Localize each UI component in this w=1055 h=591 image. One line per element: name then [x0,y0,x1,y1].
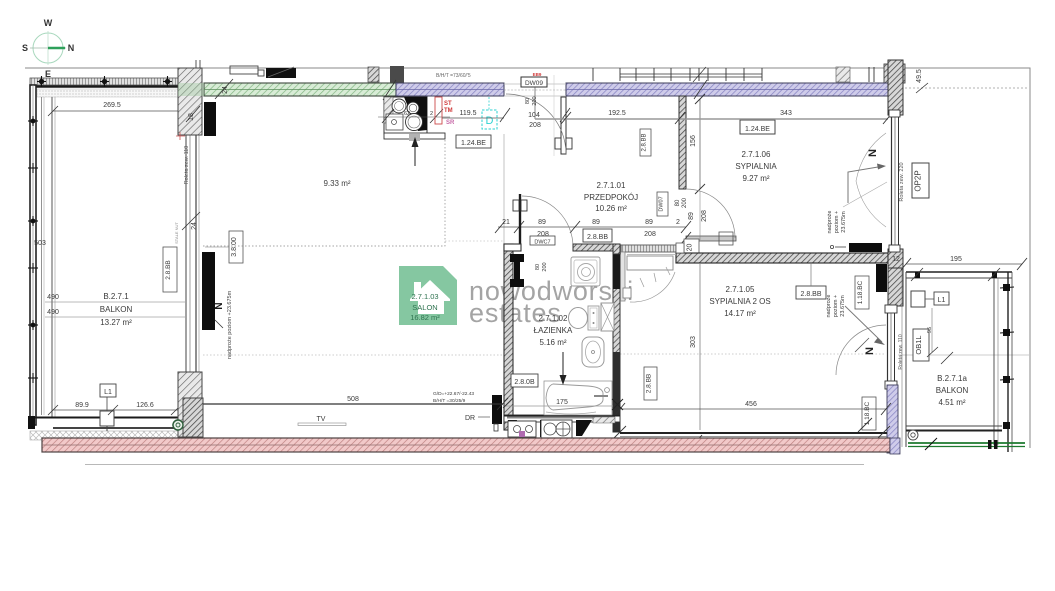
svg-text:80: 80 [535,264,541,270]
svg-text:SR: SR [446,120,455,126]
svg-text:SYPIALNIA 2 OS: SYPIALNIA 2 OS [709,297,770,306]
svg-text:nadproże poziom +23.675m: nadproże poziom +23.675m [227,290,233,359]
svg-text:195: 195 [950,256,962,263]
svg-text:269.5: 269.5 [103,102,121,109]
svg-text:nadproże: nadproże [827,211,833,234]
svg-text:23.675m: 23.675m [841,211,847,233]
svg-text:PRZEDPOKÓJ: PRZEDPOKÓJ [584,193,638,202]
svg-text:126.6: 126.6 [136,402,154,409]
svg-text:2.8.BB: 2.8.BB [642,133,648,151]
svg-text:ST: ST [444,101,452,107]
svg-text:119.5: 119.5 [460,110,477,117]
svg-text:EB9: EB9 [533,72,542,77]
svg-text:B/H/T =73/60/'5: B/H/T =73/60/'5 [436,73,471,79]
svg-text:nadproże: nadproże [826,295,832,318]
svg-text:23.675m: 23.675m [840,295,846,317]
svg-text:12: 12 [892,256,900,263]
svg-text:DW09: DW09 [525,80,543,87]
svg-text:156: 156 [690,135,697,147]
svg-text:OB1L: OB1L [914,335,923,354]
svg-text:SALON: SALON [412,303,437,312]
svg-text:303: 303 [690,336,697,348]
svg-text:DW07: DW07 [659,196,665,211]
svg-text:3.8.00: 3.8.00 [231,237,238,257]
svg-text:208: 208 [644,231,656,238]
svg-text:2: 2 [676,219,680,226]
svg-text:13.27 m²: 13.27 m² [100,318,132,327]
svg-text:208: 208 [701,210,708,222]
svg-text:2.7.1.03: 2.7.1.03 [411,292,438,301]
svg-text:B.2.7.1a: B.2.7.1a [937,374,967,383]
svg-text:Roleta zew. 110: Roleta zew. 110 [184,146,190,185]
svg-text:18: 18 [188,113,195,121]
svg-text:L1: L1 [938,297,946,304]
svg-text:2.8.BB: 2.8.BB [587,234,608,241]
svg-text:2.8.0B: 2.8.0B [514,379,535,386]
svg-text:24: 24 [191,222,198,230]
svg-text:490: 490 [47,294,59,301]
svg-text:49.5: 49.5 [916,69,923,83]
svg-text:TV: TV [317,416,326,423]
svg-text:89: 89 [645,219,653,226]
svg-text:2: 2 [430,111,433,117]
svg-text:80: 80 [525,98,531,104]
svg-text:24: 24 [222,86,229,94]
svg-text:104: 104 [528,112,540,119]
svg-text:G/D=+22.67/-22.43: G/D=+22.67/-22.43 [433,391,474,397]
svg-text:W: W [44,18,53,28]
svg-text:ŁAZIENKA: ŁAZIENKA [534,326,573,335]
svg-text:14.17 m²: 14.17 m² [724,309,756,318]
svg-text:B/H/T =30/25/9: B/H/T =30/25/9 [433,398,466,404]
svg-text:456: 456 [745,401,757,408]
svg-text:L1: L1 [104,389,112,396]
svg-text:1.24.BE: 1.24.BE [461,140,486,147]
svg-text:20: 20 [687,244,694,252]
svg-text:TM: TM [444,108,453,114]
svg-text:89: 89 [688,212,695,220]
svg-text:9.33 m²: 9.33 m² [323,179,350,188]
svg-text:DR: DR [465,415,475,422]
svg-text:SYPIALNIA: SYPIALNIA [735,162,777,171]
svg-text:Roleta zew. 110: Roleta zew. 110 [898,334,904,369]
svg-text:16.82 m²: 16.82 m² [410,313,440,322]
svg-text:503: 503 [34,240,46,247]
svg-text:2.7.1.02: 2.7.1.02 [539,314,568,323]
svg-text:1.18.BC: 1.18.BC [857,280,864,304]
svg-text:BALKON: BALKON [936,386,969,395]
svg-text:2.7.1.01: 2.7.1.01 [597,181,626,190]
svg-text:200: 200 [542,262,548,271]
svg-text:N: N [867,149,879,157]
svg-text:10.26 m²: 10.26 m² [595,204,627,213]
svg-text:5.16 m²: 5.16 m² [539,338,566,347]
svg-text:estates: estates [469,298,562,328]
svg-text:200: 200 [682,197,688,208]
svg-text:80: 80 [675,199,681,206]
svg-text:89: 89 [538,219,546,226]
svg-text:2.7.1.05: 2.7.1.05 [726,285,755,294]
svg-text:21: 21 [502,219,510,226]
svg-text:2.8.BB: 2.8.BB [800,291,821,298]
svg-text:2.7.1.06: 2.7.1.06 [742,150,771,159]
svg-text:BALKON: BALKON [100,305,133,314]
svg-text:2.8.BB: 2.8.BB [165,260,172,280]
svg-text:N: N [214,302,225,309]
svg-text:89.9: 89.9 [75,402,89,409]
svg-text:N: N [864,347,876,355]
svg-text:STALE NUT: STALE NUT [174,222,179,244]
svg-text:N: N [68,43,75,53]
svg-text:208: 208 [529,122,541,129]
svg-text:B.2.7.1: B.2.7.1 [103,292,129,301]
svg-text:89: 89 [592,219,600,226]
svg-text:343: 343 [780,110,792,117]
svg-text:E: E [45,69,51,79]
svg-text:9.27 m²: 9.27 m² [742,174,769,183]
svg-text:Roleta zew. 220: Roleta zew. 220 [899,162,905,201]
svg-text:1.18.BC: 1.18.BC [864,401,871,425]
svg-text:1.24.BE: 1.24.BE [745,126,770,133]
svg-text:poziom +: poziom + [834,211,840,233]
svg-text:175: 175 [556,399,568,406]
svg-text:62: 62 [404,111,410,117]
svg-text:S: S [22,43,28,53]
svg-text:490: 490 [47,309,59,316]
svg-text:200: 200 [532,96,538,105]
svg-text:poziom +: poziom + [833,295,839,317]
svg-text:4.51 m²: 4.51 m² [938,398,965,407]
svg-text:OP2P: OP2P [914,170,923,191]
svg-text:D: D [486,115,494,127]
svg-text:192.5: 192.5 [608,110,626,117]
svg-text:DWC7: DWC7 [534,240,550,246]
svg-text:2.8.BB: 2.8.BB [646,374,653,394]
svg-text:508: 508 [347,396,359,403]
